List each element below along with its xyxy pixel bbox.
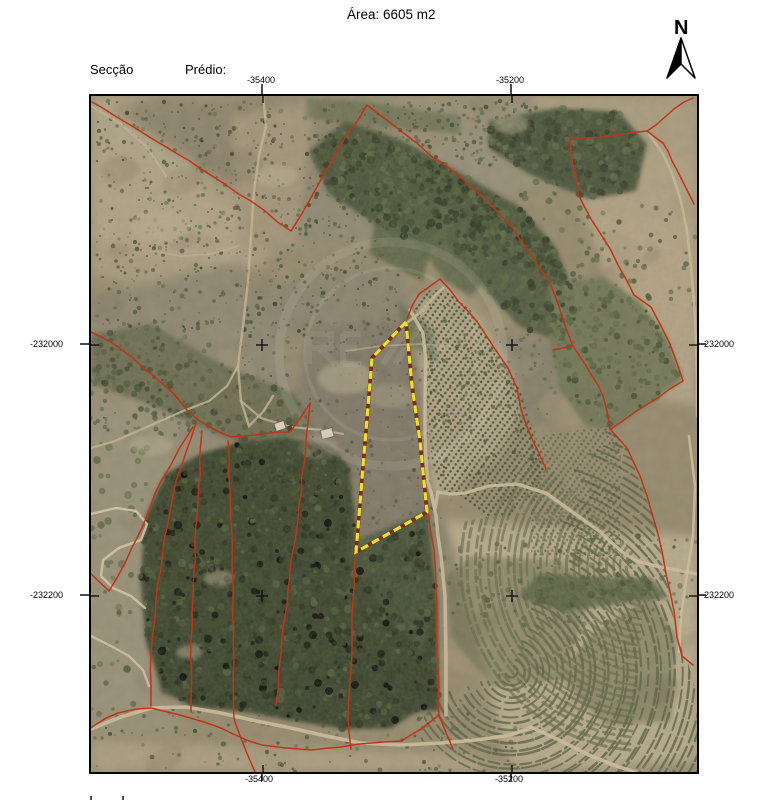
svg-text:N: N	[674, 17, 688, 39]
